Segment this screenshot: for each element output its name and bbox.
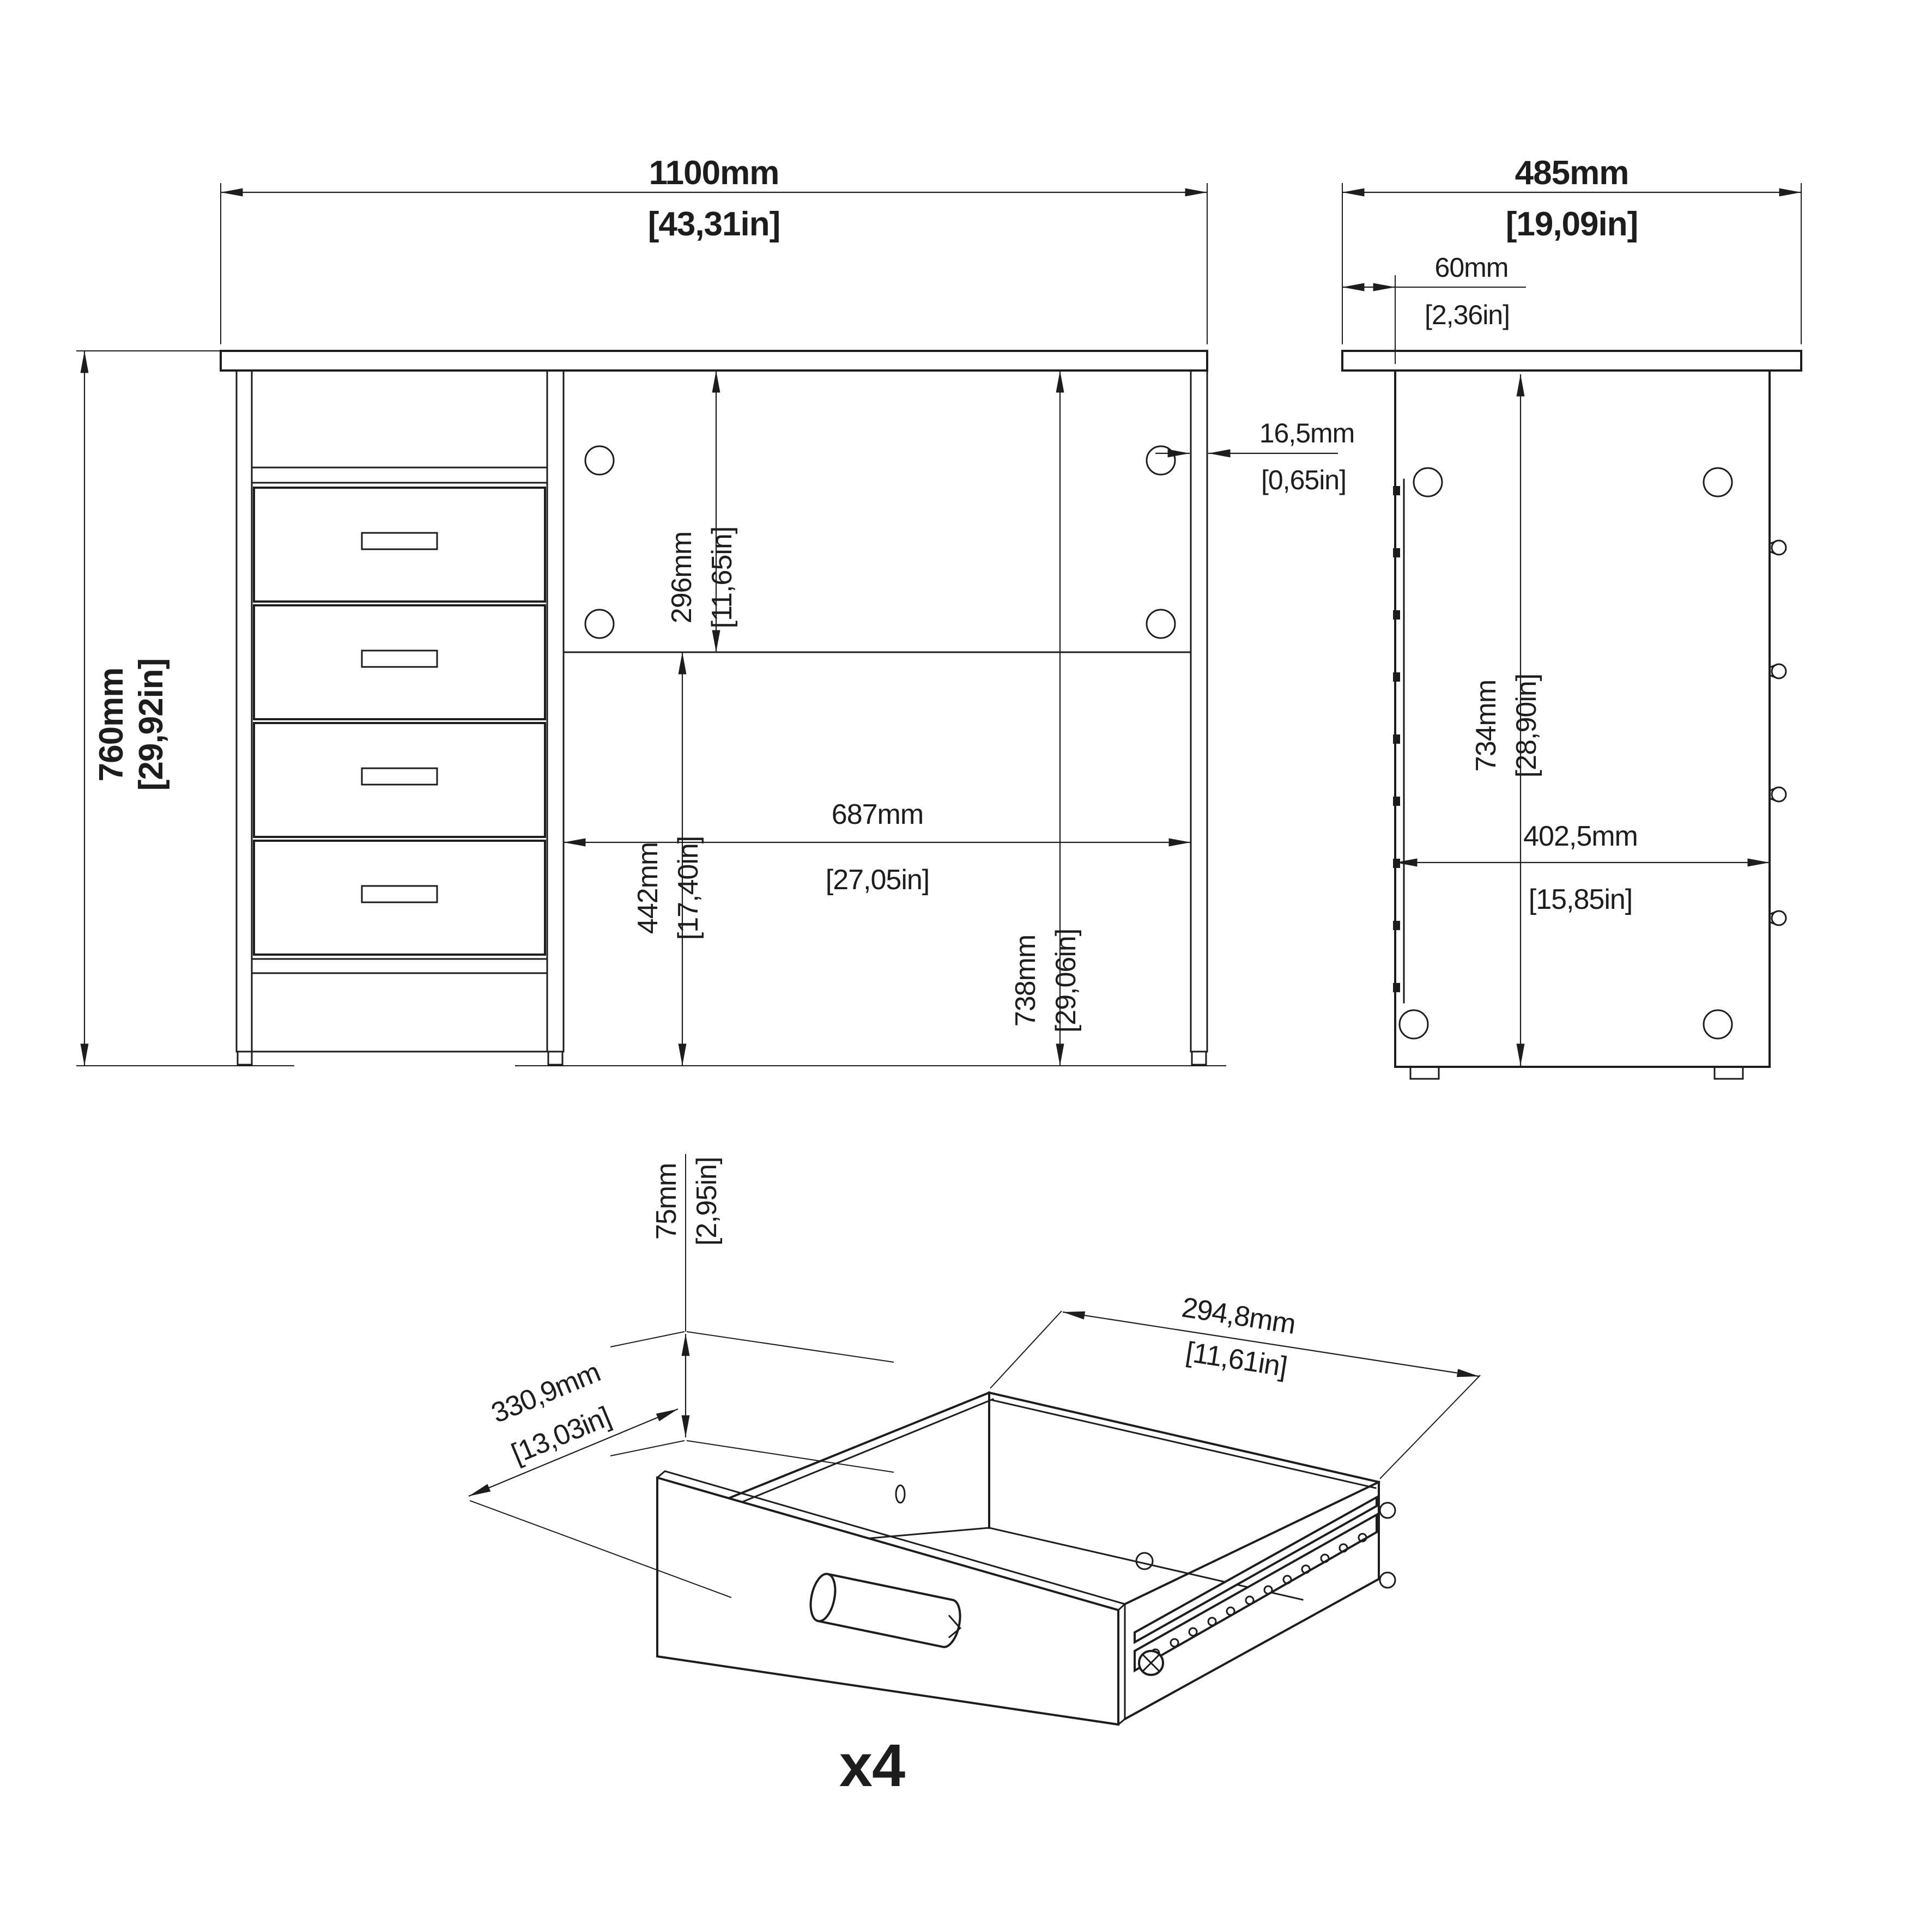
dim-label: 760mm xyxy=(93,668,130,782)
dim-label: 738mm xyxy=(1010,935,1041,1027)
dim-label: 687mm xyxy=(832,799,923,830)
screw-hole xyxy=(1704,1010,1732,1039)
side-view-outline xyxy=(1342,351,1801,1079)
dim-label-in: [0,65in] xyxy=(1261,465,1346,495)
front-view: 1100mm [43,31in] 760mm [29,92in] 296mm [… xyxy=(76,154,1354,1066)
drawer-handle-3 xyxy=(362,768,437,785)
screw-hole xyxy=(1147,446,1175,475)
side-foot-left xyxy=(1410,1067,1439,1079)
cam-hooks xyxy=(1770,541,1786,925)
pedestal-plinth xyxy=(252,959,547,973)
back-rim-outer xyxy=(989,1393,1379,1482)
dim-label: 75mm xyxy=(651,1163,682,1240)
dim-side-panel-depth: 402,5mm [15,85in] xyxy=(1395,821,1770,915)
back-rim-inner xyxy=(993,1400,1376,1488)
dim-label: 16,5mm xyxy=(1259,418,1355,448)
front-foot-left xyxy=(238,1052,252,1065)
dim-label-in: [2,36in] xyxy=(1425,300,1510,330)
back-panel-hole xyxy=(896,1485,905,1503)
dim-label: 60mm xyxy=(1435,252,1509,283)
drawer-detail-view: 75mm [2,95in] 330,9mm [13,03in] 294,8mm … xyxy=(469,1154,1480,1799)
dim-label: 402,5mm xyxy=(1523,821,1638,852)
drawer-quantity-label: x4 xyxy=(839,1732,905,1799)
drawer-front-3 xyxy=(254,723,545,837)
screw-hole xyxy=(1704,468,1732,496)
side-foot-right xyxy=(1715,1067,1743,1079)
screw-hole xyxy=(585,610,614,638)
dim-label-in: [17,40in] xyxy=(673,836,704,940)
front-desktop xyxy=(221,351,1207,371)
drawer-front-4 xyxy=(254,841,545,955)
dim-label: 734mm xyxy=(1470,680,1502,772)
dim-label-in: [43,31in] xyxy=(648,205,780,243)
dim-label: 296mm xyxy=(666,532,698,623)
desk-dimension-drawing: 1100mm [43,31in] 760mm [29,92in] 296mm [… xyxy=(0,0,1932,1931)
drawer-front-1 xyxy=(254,488,545,602)
dim-lower-clear-height: 442mm [17,40in] xyxy=(632,652,704,1066)
dim-label: 442mm xyxy=(632,842,664,934)
front-left-leg xyxy=(237,371,252,1052)
pedestal-shelf-divider xyxy=(252,467,547,483)
front-right-leg xyxy=(1191,371,1207,1052)
dim-panel-thickness: 16,5mm [0,65in] xyxy=(1155,418,1354,495)
drawer-handle-4 xyxy=(362,886,437,902)
front-foot-middle xyxy=(548,1052,562,1065)
side-desktop xyxy=(1342,351,1801,371)
dim-label-in: [19,09in] xyxy=(1506,205,1638,243)
dim-label-in: [27,05in] xyxy=(826,864,930,896)
technical-drawing-page: 1100mm [43,31in] 760mm [29,92in] 296mm [… xyxy=(0,0,1932,1931)
dim-label-in: [28,90in] xyxy=(1511,674,1542,778)
dim-label-in: [29,92in] xyxy=(132,659,170,791)
dim-label-in: [11,65in] xyxy=(706,527,738,629)
screw-hole xyxy=(585,446,614,475)
dim-label: 1100mm xyxy=(649,154,779,192)
drawer-handle-2 xyxy=(362,651,437,667)
screw-hole xyxy=(1147,610,1175,638)
dim-overall-depth: 485mm [19,09in] xyxy=(1342,154,1801,344)
dim-label-in: [15,85in] xyxy=(1529,884,1633,915)
dim-side-panel-height: 734mm [28,90in] xyxy=(1470,374,1542,1066)
side-panel xyxy=(1395,371,1770,1067)
screw-hole xyxy=(1400,1010,1428,1039)
dim-under-top-height: 738mm [29,06in] xyxy=(1010,371,1082,1066)
dim-label: 485mm xyxy=(1515,154,1629,192)
dim-label-in: [29,06in] xyxy=(1050,929,1082,1033)
dim-overall-height: 760mm [29,92in] xyxy=(76,351,221,1066)
drawer-handle-1 xyxy=(362,533,437,549)
drawer-box xyxy=(657,1393,1395,1724)
cam-tabs xyxy=(1393,486,1400,992)
side-view: 485mm [19,09in] 60mm [2,36in] 734mm [28,… xyxy=(1342,154,1801,1079)
dim-drawer-inner-height: 75mm [2,95in] xyxy=(610,1154,894,1472)
screw-hole xyxy=(1414,468,1442,496)
pedestal-drawers xyxy=(254,488,545,955)
dim-label-in: [11,61in] xyxy=(1184,1336,1289,1383)
dim-back-panel-height: 296mm [11,65in] xyxy=(666,371,738,652)
pedestal-right-panel xyxy=(547,371,564,1052)
dim-drawer-width: 294,8mm [11,61in] xyxy=(990,1291,1480,1479)
dim-label-in: [2,95in] xyxy=(691,1157,723,1246)
dim-overall-width: 1100mm [43,31in] xyxy=(221,154,1207,344)
front-foot-right xyxy=(1192,1052,1206,1065)
dim-top-overhang: 60mm [2,36in] xyxy=(1342,252,1526,364)
drawer-front-2 xyxy=(254,605,545,719)
